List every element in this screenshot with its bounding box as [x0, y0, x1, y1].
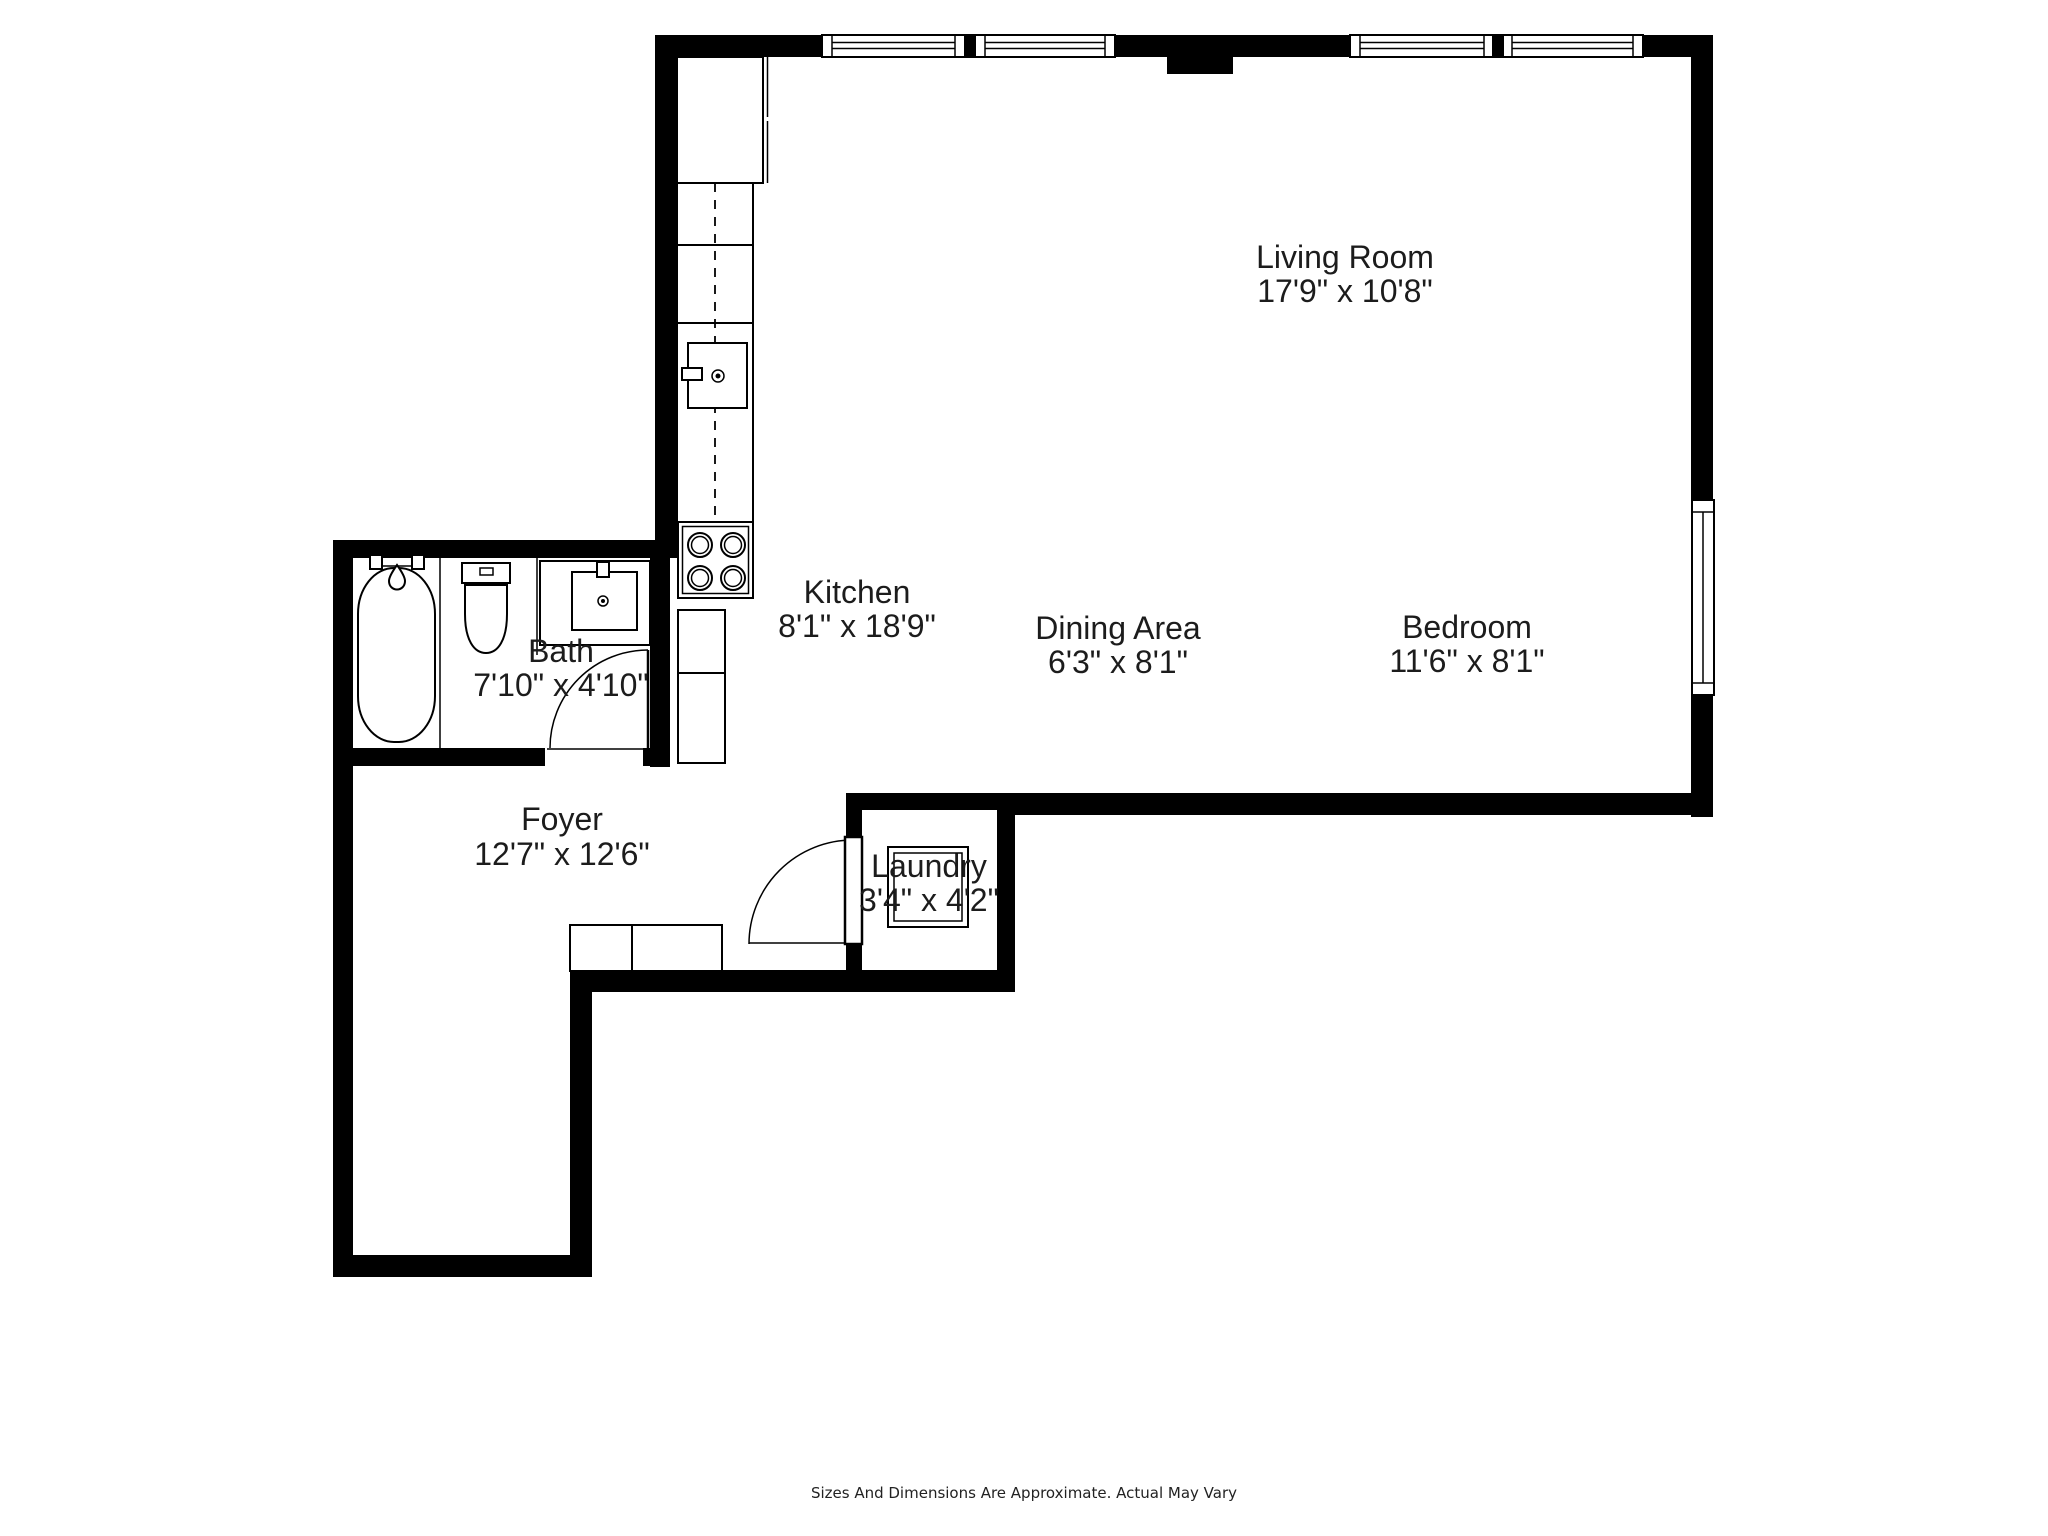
- foyer-closet-left: [570, 925, 632, 971]
- foyer-closet-right: [632, 925, 722, 971]
- room-label-kitchen: Kitchen 8'1" x 18'9": [778, 574, 936, 644]
- wall-column-bump: [1167, 57, 1233, 74]
- room-dimensions: 3'4" x 4'2": [859, 882, 999, 918]
- wall-bath-bottom-left: [333, 748, 545, 766]
- kitchen-lower-cabinet-1: [678, 610, 725, 673]
- room-label-foyer: Foyer 12'7" x 12'6": [474, 801, 650, 872]
- wall-corridor-bottom: [570, 970, 1015, 992]
- room-label-bedroom: Bedroom 11'6" x 8'1": [1389, 609, 1544, 679]
- wall-kitchen-left: [655, 35, 677, 540]
- room-dimensions: 8'1" x 18'9": [778, 608, 936, 644]
- kitchen-sink-icon: [682, 343, 747, 408]
- stove-icon: [678, 522, 753, 598]
- room-name: Bath: [528, 633, 594, 669]
- room-name: Kitchen: [804, 574, 911, 610]
- wall-right: [1691, 35, 1713, 817]
- kitchen-tall-cabinet: [677, 57, 763, 183]
- window-top-left-icon: [822, 35, 1115, 57]
- room-dimensions: 7'10" x 4'10": [473, 667, 649, 703]
- room-name: Laundry: [871, 848, 987, 884]
- wall-foyer-bottom: [333, 1255, 592, 1277]
- room-dimensions: 6'3" x 8'1": [1048, 644, 1188, 680]
- windows: [822, 35, 1714, 695]
- floor-plan: Living Room 17'9" x 10'8" Kitchen 8'1" x…: [0, 0, 2048, 1536]
- wall-laundry-top: [846, 793, 1015, 810]
- room-label-dining-area: Dining Area 6'3" x 8'1": [1035, 610, 1201, 680]
- room-name: Foyer: [521, 801, 603, 837]
- kitchen-fixtures: [677, 57, 768, 763]
- wall-laundry-right: [997, 793, 1015, 992]
- room-label-laundry: Laundry 3'4" x 4'2": [859, 848, 999, 918]
- room-dimensions: 17'9" x 10'8": [1257, 273, 1433, 309]
- wall-main-bottom: [997, 793, 1713, 815]
- bath-fixtures: [358, 555, 650, 749]
- wall-bath-top: [333, 540, 677, 558]
- room-name: Dining Area: [1035, 610, 1201, 646]
- window-top-right-icon: [1350, 35, 1643, 57]
- toilet-icon: [462, 563, 510, 653]
- wall-bath-foyer-left: [333, 540, 353, 1277]
- wall-foyer-right: [570, 992, 592, 1277]
- window-bedroom-icon: [1692, 500, 1714, 695]
- wall-laundry-left-lower: [846, 943, 862, 972]
- room-name: Living Room: [1256, 239, 1434, 275]
- wall-bath-right: [650, 540, 670, 767]
- disclaimer-text: Sizes And Dimensions Are Approximate. Ac…: [811, 1484, 1237, 1502]
- bathtub-icon: [358, 568, 435, 742]
- room-dimensions: 12'7" x 12'6": [474, 836, 650, 872]
- room-dimensions: 11'6" x 8'1": [1389, 643, 1544, 679]
- laundry-door-swing-icon: [749, 837, 862, 944]
- room-name: Bedroom: [1402, 609, 1532, 645]
- room-label-living-room: Living Room 17'9" x 10'8": [1256, 239, 1434, 309]
- kitchen-lower-cabinet-2: [678, 673, 725, 763]
- wall-bath-bottom-corner: [643, 748, 670, 766]
